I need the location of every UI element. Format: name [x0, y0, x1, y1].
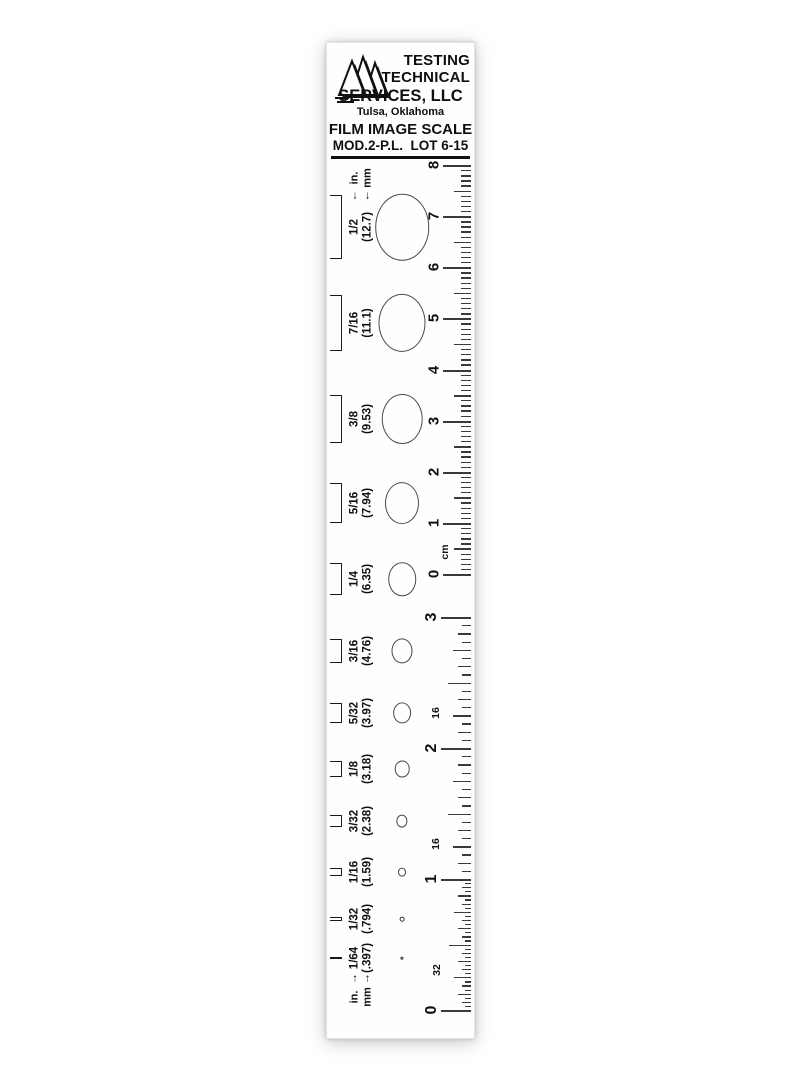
cm-minor-tick	[461, 277, 471, 278]
inch-sixteenth-tick	[458, 830, 471, 831]
millimeter-value-label: (9.53)	[362, 404, 374, 434]
cm-half-tick	[454, 497, 471, 499]
inch-thirtysecond-tick	[462, 904, 471, 905]
millimeter-value-label: (1.59)	[362, 857, 374, 887]
inch-sixteenth-tick	[462, 723, 471, 724]
fraction-inch-label: 5/16	[349, 492, 361, 514]
cm-minor-tick	[461, 211, 471, 212]
cm-minor-tick	[461, 221, 471, 222]
fraction-inch-label: 1/16	[349, 861, 361, 883]
cm-minor-tick	[461, 513, 471, 514]
inch-sixteenth-tick	[453, 846, 471, 847]
inch-thirtysecond-tick	[465, 916, 471, 917]
inch-thirtysecond-tick	[465, 949, 471, 950]
cm-minor-tick	[461, 359, 471, 360]
inch-sixteenth-tick	[462, 625, 471, 626]
cm-minor-tick	[461, 231, 471, 232]
cm-minor-tick	[461, 508, 471, 509]
bottom-inch-up-arrow-icon: ↑	[352, 974, 358, 985]
inch-thirtysecond-tick	[462, 1002, 471, 1003]
cm-major-tick	[443, 370, 471, 372]
inch-sixteenth-tick	[458, 863, 471, 864]
cm-minor-tick	[461, 456, 471, 457]
cm-minor-tick	[461, 426, 471, 427]
millimeter-value-label: (7.94)	[362, 488, 374, 518]
cm-minor-tick	[461, 206, 471, 207]
cm-minor-tick	[461, 262, 471, 263]
cm-minor-tick	[461, 405, 471, 406]
inch-major-tick	[441, 617, 471, 619]
size-bracket	[330, 761, 342, 777]
millimeter-value-label: (.397)	[362, 943, 374, 973]
cm-half-tick	[454, 191, 471, 193]
size-bracket	[330, 295, 342, 351]
cm-minor-tick	[461, 257, 471, 258]
top-mm-down-arrow-icon: ↓	[365, 191, 371, 202]
scanned-ruler-photo: { "header": { "company_line1": "TESTING"…	[0, 0, 800, 1075]
cm-minor-tick	[461, 569, 471, 570]
size-bracket	[330, 483, 342, 523]
inch-thirtysecond-tick	[465, 973, 471, 974]
cm-minor-tick	[461, 431, 471, 432]
cm-minor-tick	[461, 308, 471, 309]
cm-number: 2	[427, 468, 442, 476]
cm-minor-tick	[461, 349, 471, 350]
inch-sixteenth-tick	[462, 805, 471, 806]
size-bracket	[330, 957, 342, 959]
cm-minor-tick	[461, 303, 471, 304]
cm-minor-tick	[461, 462, 471, 463]
cm-minor-tick	[461, 237, 471, 238]
cm-minor-tick	[461, 559, 471, 560]
cm-minor-tick	[461, 339, 471, 340]
company-name-line3: SERVICES, LLC	[327, 88, 474, 105]
reference-hole-circle	[393, 702, 411, 723]
cm-minor-tick	[461, 334, 471, 335]
inch-thirtysecond-tick	[462, 920, 471, 921]
inch-thirtysecond-tick	[458, 961, 471, 962]
cm-minor-tick	[461, 201, 471, 202]
product-title: FILM IMAGE SCALE	[327, 122, 474, 138]
inch-sixteenth-tick	[462, 691, 471, 692]
cm-minor-tick	[461, 385, 471, 386]
fraction-inch-label: 5/32	[349, 702, 361, 724]
cm-minor-tick	[461, 252, 471, 253]
cm-minor-tick	[461, 380, 471, 381]
company-name-line2: TECHNICAL	[327, 70, 474, 86]
cm-half-tick	[454, 344, 471, 346]
fraction-inch-label: 1/2	[349, 219, 361, 235]
inch-thirtysecond-tick	[462, 969, 471, 970]
inch-sixteenth-tick	[458, 764, 471, 765]
cm-half-tick	[454, 293, 471, 295]
fraction-inch-label: 1/8	[349, 761, 361, 777]
reference-hole-circle	[379, 294, 426, 352]
inch-thirtysecond-tick	[465, 990, 471, 991]
cm-minor-tick	[461, 451, 471, 452]
cm-number: 8	[427, 161, 442, 169]
inch-thirtysecond-tick	[465, 932, 471, 933]
cm-number: 4	[427, 365, 442, 373]
fraction-inch-label: 1/32	[349, 908, 361, 930]
inch-sixteenth-tick	[462, 773, 471, 774]
inch-thirtysecond-tick	[465, 965, 471, 966]
cm-half-tick	[454, 446, 471, 448]
inch-sixteenth-tick	[462, 871, 471, 872]
size-bracket	[330, 395, 342, 443]
cm-minor-tick	[461, 170, 471, 171]
inch-sixteenth-tick	[462, 707, 471, 708]
inch-sixteenth-tick	[458, 666, 471, 667]
size-bracket	[330, 703, 342, 723]
cm-minor-tick	[461, 518, 471, 519]
inch-number: 2	[424, 744, 440, 753]
inch-thirtysecond-tick	[458, 895, 471, 896]
reference-hole-circle	[400, 917, 405, 922]
cm-number: 6	[427, 263, 442, 271]
cm-minor-tick	[461, 180, 471, 181]
reference-hole-circle	[375, 194, 429, 261]
inch-sixteenth-tick	[462, 642, 471, 643]
top-mm-unit-label: mm	[362, 168, 373, 188]
film-image-scale-ruler: TESTING TECHNICAL SERVICES, LLC Tulsa, O…	[326, 42, 475, 1039]
inch-thirtysecond-tick	[458, 994, 471, 995]
reference-hole-circle	[398, 868, 406, 877]
inch-thirtysecond-tick	[462, 953, 471, 954]
millimeter-value-label: (3.18)	[362, 754, 374, 784]
inch-thirtysecond-tick	[465, 940, 471, 941]
inch-sixteenth-tick	[458, 797, 471, 798]
inch-sixteenth-tick	[458, 732, 471, 733]
cm-minor-tick	[461, 441, 471, 442]
cm-minor-tick	[461, 247, 471, 248]
inch-sixteenth-tick	[462, 822, 471, 823]
cm-number: 0	[427, 570, 442, 578]
inch-sixteenth-tick	[462, 756, 471, 757]
cm-major-tick	[443, 574, 471, 576]
inch-thirtysecond-tick	[454, 977, 471, 978]
cm-minor-tick	[461, 564, 471, 565]
inch-sixteenth-tick	[448, 814, 471, 815]
cm-minor-tick	[461, 375, 471, 376]
inch-thirtysecond-tick	[465, 981, 471, 982]
inch-sixteenth-tick	[453, 715, 471, 716]
inch-sixteenth-tick	[458, 699, 471, 700]
inch-major-tick	[441, 879, 471, 881]
inch-sixteenth-tick	[448, 683, 471, 684]
inch-sixteenth-tick	[458, 633, 471, 634]
inch-sixteenth-tick	[462, 789, 471, 790]
inch-thirtysecond-tick	[465, 899, 471, 900]
inch-thirtysecond-tick	[465, 957, 471, 958]
cm-minor-tick	[461, 226, 471, 227]
cm-number: 1	[427, 519, 442, 527]
cm-major-tick	[443, 216, 471, 218]
inch-number: 3	[424, 613, 440, 622]
cm-minor-tick	[461, 528, 471, 529]
cm-unit-label: cm	[440, 544, 451, 559]
cm-minor-tick	[461, 436, 471, 437]
millimeter-value-label: (.794)	[362, 904, 374, 934]
reference-hole-circle	[382, 394, 423, 444]
millimeter-value-label: (6.35)	[362, 564, 374, 594]
cm-minor-tick	[461, 477, 471, 478]
inch-thirtysecond-tick	[465, 908, 471, 909]
inch-sixteenth-tick	[462, 674, 471, 675]
millimeter-value-label: (12.7)	[362, 212, 374, 242]
cm-minor-tick	[461, 487, 471, 488]
inch-sixteenth-tick	[462, 658, 471, 659]
fraction-inch-label: 3/32	[349, 810, 361, 832]
cm-minor-tick	[461, 364, 471, 365]
inch-thirtysecond-tick	[465, 883, 471, 884]
cm-minor-tick	[461, 272, 471, 273]
millimeter-value-label: (11.1)	[362, 308, 374, 337]
cm-number: 5	[427, 314, 442, 322]
header-divider	[331, 156, 470, 159]
cm-minor-tick	[461, 323, 471, 324]
inch-thirtysecond-tick	[454, 912, 471, 913]
inch-major-tick	[441, 1010, 471, 1012]
top-inch-unit-label: in.	[350, 172, 361, 185]
millimeter-value-label: (3.97)	[362, 698, 374, 728]
cm-minor-tick	[461, 538, 471, 539]
cm-half-tick	[454, 242, 471, 244]
scale-denominator-label: 32	[432, 964, 443, 976]
bottom-mm-unit-label: mm	[362, 987, 373, 1007]
size-bracket	[330, 563, 342, 595]
reference-hole-circle	[388, 562, 416, 596]
reference-hole-circle	[395, 760, 410, 777]
inch-thirtysecond-tick	[462, 887, 471, 888]
cm-minor-tick	[461, 390, 471, 391]
fraction-inch-label: 3/16	[349, 640, 361, 662]
cm-major-tick	[443, 318, 471, 320]
fraction-inch-label: 1/4	[349, 571, 361, 587]
cm-minor-tick	[461, 467, 471, 468]
cm-minor-tick	[461, 482, 471, 483]
inch-thirtysecond-tick	[465, 1006, 471, 1007]
inch-thirtysecond-tick	[458, 928, 471, 929]
reference-hole-circle	[385, 482, 419, 524]
cm-minor-tick	[461, 416, 471, 417]
cm-half-tick	[454, 395, 471, 397]
cm-number: 7	[427, 212, 442, 220]
reference-hole-circle	[400, 957, 403, 960]
cm-major-tick	[443, 472, 471, 474]
scale-denominator-label: 16	[431, 707, 442, 719]
cm-minor-tick	[461, 185, 471, 186]
top-inch-down-arrow-icon: ↓	[352, 191, 358, 202]
inch-major-tick	[441, 748, 471, 750]
size-bracket	[330, 815, 342, 827]
cm-minor-tick	[461, 543, 471, 544]
cm-major-tick	[443, 165, 471, 167]
cm-minor-tick	[461, 502, 471, 503]
size-bracket	[330, 917, 342, 921]
inch-thirtysecond-tick	[462, 936, 471, 937]
cm-minor-tick	[461, 283, 471, 284]
fraction-inch-label: 7/16	[349, 312, 361, 334]
size-bracket	[330, 195, 342, 259]
millimeter-value-label: (4.76)	[362, 636, 374, 666]
inch-thirtysecond-tick	[465, 891, 471, 892]
inch-sixteenth-tick	[453, 781, 471, 782]
cm-minor-tick	[461, 313, 471, 314]
inch-sixteenth-tick	[462, 740, 471, 741]
company-name-line1: TESTING	[327, 53, 474, 69]
cm-minor-tick	[461, 533, 471, 534]
cm-minor-tick	[461, 492, 471, 493]
cm-minor-tick	[461, 196, 471, 197]
inch-number: 0	[424, 1006, 440, 1015]
inch-number: 1	[424, 875, 440, 884]
fraction-inch-label: 3/8	[349, 411, 361, 427]
cm-minor-tick	[461, 410, 471, 411]
reference-hole-circle	[391, 638, 412, 663]
cm-major-tick	[443, 421, 471, 423]
bottom-mm-up-arrow-icon: ↑	[365, 974, 371, 985]
cm-minor-tick	[461, 288, 471, 289]
scale-denominator-label: 16	[431, 838, 442, 850]
inch-sixteenth-tick	[453, 650, 471, 651]
cm-number: 3	[427, 416, 442, 424]
cm-minor-tick	[461, 354, 471, 355]
inch-thirtysecond-tick	[465, 998, 471, 999]
bottom-inch-unit-label: in.	[350, 991, 361, 1004]
reference-hole-circle	[396, 815, 407, 828]
model-lot-number: MOD.2-P.L. LOT 6-15	[327, 139, 474, 153]
inch-sixteenth-tick	[462, 854, 471, 855]
millimeter-value-label: (2.38)	[362, 806, 374, 836]
inch-thirtysecond-tick	[449, 945, 471, 946]
size-bracket	[330, 868, 342, 876]
cm-half-tick	[454, 548, 471, 550]
inch-thirtysecond-tick	[465, 924, 471, 925]
cm-minor-tick	[461, 329, 471, 330]
cm-minor-tick	[461, 175, 471, 176]
inch-thirtysecond-tick	[462, 985, 471, 986]
company-location: Tulsa, Oklahoma	[327, 107, 474, 119]
cm-major-tick	[443, 267, 471, 269]
cm-minor-tick	[461, 400, 471, 401]
cm-minor-tick	[461, 554, 471, 555]
cm-major-tick	[443, 523, 471, 525]
inch-sixteenth-tick	[462, 838, 471, 839]
cm-minor-tick	[461, 298, 471, 299]
fraction-inch-label: 1/64	[349, 947, 361, 969]
size-bracket	[330, 639, 342, 663]
